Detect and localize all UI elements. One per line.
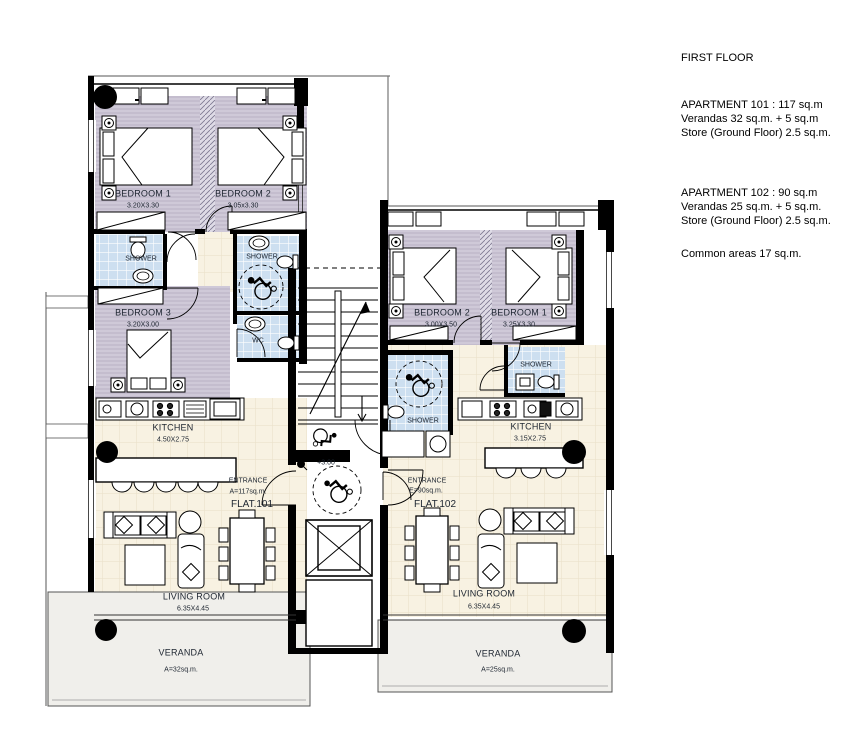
entrance-label-102: ENTRANCE [408,478,447,485]
kitchen-counter [96,398,244,420]
chaise-icon [178,534,204,588]
floor-title: FIRST FLOOR [681,52,754,64]
entrance-area-101: A=117sq.m. [229,489,266,496]
elevator [306,520,372,646]
wheelchair-icon [313,428,337,447]
entrance-label-101: ENTRANCE [229,478,268,485]
room-label-shower2-102: SHOWER [520,362,552,369]
flat-101-title: FLAT.101 [231,500,273,510]
room-dims-living-101: 6.35X4.45 [177,606,209,613]
common-areas-line: Common areas 17 sq.m. [681,248,801,260]
room-label-bedroom2-102: BEDROOM 2 [414,309,470,318]
room-dims-bedroom3-101: 3.20X3.00 [127,322,159,329]
closet-icon [388,212,584,226]
room-dims-bedroom2-102: 3.00X3.50 [425,322,457,329]
vanity-counter [382,431,450,457]
apt102-info-line2: Verandas 25 sq.m. + 5 sq.m. [681,201,821,213]
veranda-label-101: VERANDA [159,649,204,658]
sofa-icon [504,508,574,534]
coffee-table-icon [517,543,557,583]
plan-drawing [0,0,660,737]
room-label-living-101: LIVING ROOM [163,593,225,602]
bar-counter [96,458,236,492]
veranda-area-101: A=32sq.m. [164,667,198,674]
room-dims-bedroom2-101: 3.05x3.30 [228,203,259,210]
toilet-icon [277,255,298,269]
apt101-info-line1: APARTMENT 101 : 117 sq.m [681,99,823,111]
room-dims-living-102: 6.35X4.45 [468,604,500,611]
floor-plan-sheet: BEDROOM 1 3.20X3.30 BEDROOM 2 3.05x3.30 … [0,0,844,737]
hob-icon [490,401,516,417]
side-table-icon [179,511,201,533]
room-label-shower1-102: SHOWER [407,418,439,425]
floor-plan: BEDROOM 1 3.20X3.30 BEDROOM 2 3.05x3.30 … [0,0,660,737]
veranda-label-102: VERANDA [476,650,521,659]
room-label-shower1-101: SHOWER [125,256,157,263]
room-label-bedroom2-101: BEDROOM 2 [215,190,271,199]
kitchen-counter [458,398,582,420]
apt102-info-line1: APARTMENT 102 : 90 sq.m [681,187,817,199]
side-table-icon [479,509,501,531]
sofa-icon [104,512,176,538]
sink-icon [249,236,269,250]
sink-icon [245,317,265,331]
apt102-info-line3: Store (Ground Floor) 2.5 sq.m. [681,215,831,227]
toilet-icon [383,405,404,419]
chaise-icon [478,534,504,588]
elevator-shaft [306,580,372,646]
room-label-kitchen-102: KITCHEN [511,423,552,432]
apt101-info-line2: Verandas 32 sq.m. + 5 sq.m [681,113,818,125]
toilet-icon [278,336,299,350]
room-dims-kitchen-102: 3.15X2.75 [514,436,546,443]
apt101-info-line3: Store (Ground Floor) 2.5 sq.m. [681,127,831,139]
level-marker-label: +3.00 [317,460,335,467]
room-label-living-102: LIVING ROOM [453,590,515,599]
toilet-icon [538,375,559,389]
flat-102-title: FLAT.102 [414,500,456,510]
room-label-kitchen-101: KITCHEN [153,424,194,433]
hob-icon [153,401,179,417]
room-label-wc-101: WC [252,338,264,345]
stairs [296,268,380,424]
room-label-bedroom3-101: BEDROOM 3 [115,309,171,318]
veranda-area-102: A=25sq.m. [481,667,515,674]
room-label-shower2-101: SHOWER [246,254,278,261]
wheelchair-icon [321,472,354,506]
entrance-area-102: E=90sq.m. [409,488,443,495]
room-dims-bedroom1-102: 3.25X3.30 [503,322,535,329]
sink-icon [133,269,153,283]
sink-icon [516,374,534,390]
room-label-bedroom1-102: BEDROOM 1 [491,309,547,318]
coffee-table-icon [125,545,165,585]
room-label-bedroom1-101: BEDROOM 1 [115,190,171,199]
room-dims-kitchen-101: 4.50X2.75 [157,437,189,444]
room-dims-bedroom1-101: 3.20X3.30 [127,203,159,210]
